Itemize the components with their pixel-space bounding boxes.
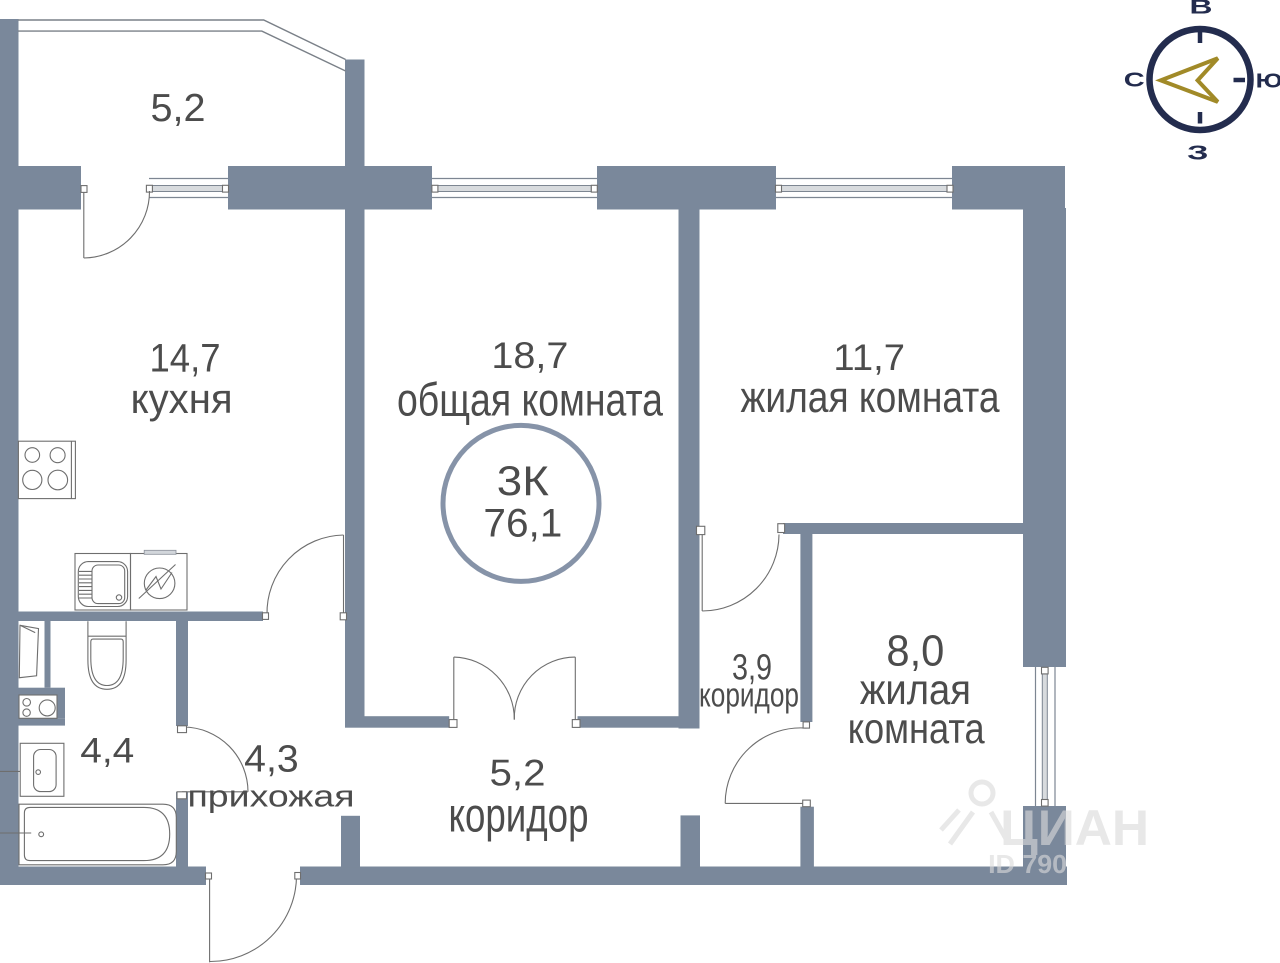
svg-text:11,7: 11,7 bbox=[833, 336, 905, 378]
svg-text:жилая комната: жилая комната bbox=[741, 374, 1001, 422]
svg-text:В: В bbox=[1190, 0, 1213, 19]
svg-text:18,7: 18,7 bbox=[491, 335, 568, 376]
svg-text:14,7: 14,7 bbox=[150, 337, 221, 381]
svg-text:76,1: 76,1 bbox=[483, 501, 562, 545]
svg-text:ЦИАН: ЦИАН bbox=[1000, 800, 1149, 856]
svg-text:З: З bbox=[1187, 142, 1209, 164]
svg-text:Ю: Ю bbox=[1256, 71, 1280, 93]
svg-text:коридор: коридор bbox=[699, 677, 799, 715]
svg-text:5,2: 5,2 bbox=[490, 752, 546, 794]
svg-text:4,4: 4,4 bbox=[80, 731, 134, 771]
svg-text:кухня: кухня bbox=[131, 375, 233, 422]
svg-text:ID 790: ID 790 bbox=[988, 849, 1067, 879]
svg-text:комната: комната bbox=[848, 705, 985, 753]
svg-text:коридор: коридор bbox=[449, 790, 589, 843]
svg-text:4,3: 4,3 bbox=[244, 738, 299, 781]
svg-text:прихожая: прихожая bbox=[188, 779, 355, 814]
svg-text:общая комната: общая комната bbox=[397, 374, 663, 426]
svg-text:С: С bbox=[1124, 69, 1145, 91]
svg-text:3К: 3К bbox=[497, 457, 549, 504]
svg-text:5,2: 5,2 bbox=[151, 87, 206, 130]
